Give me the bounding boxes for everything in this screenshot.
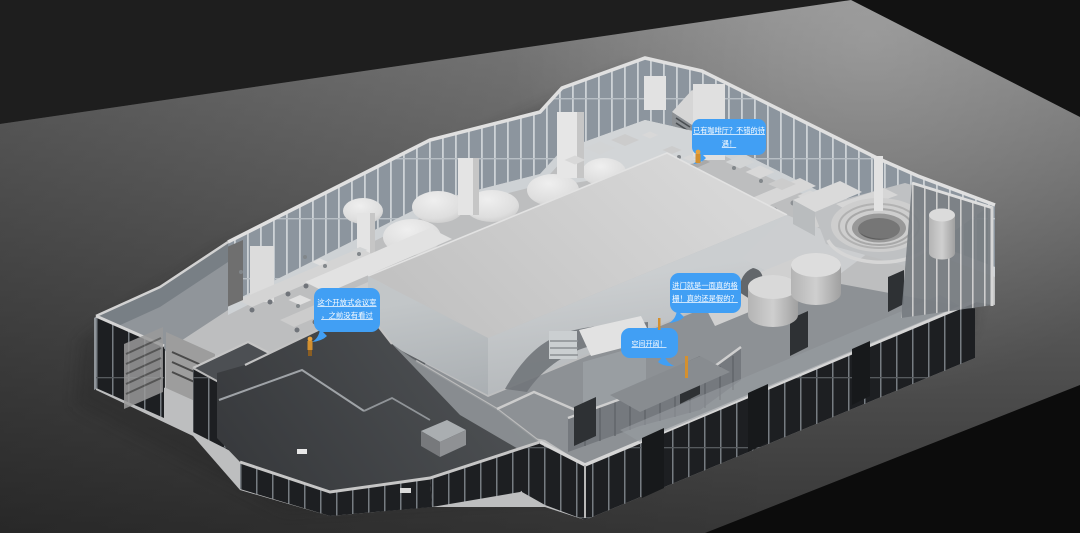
svg-text:进门就是一面真的格: 进门就是一面真的格 <box>672 281 738 290</box>
svg-text:栅！真的还是假的？: 栅！真的还是假的？ <box>672 294 738 303</box>
svg-text:空间开阔！: 空间开阔！ <box>632 339 667 348</box>
svg-text:，之前没有看过: ，之前没有看过 <box>321 311 373 320</box>
svg-text:已有咖啡厅？不错的待: 已有咖啡厅？不错的待 <box>693 126 765 135</box>
svg-text:遇！: 遇！ <box>722 139 736 148</box>
svg-text:这个开放式会议室: 这个开放式会议室 <box>317 298 376 307</box>
